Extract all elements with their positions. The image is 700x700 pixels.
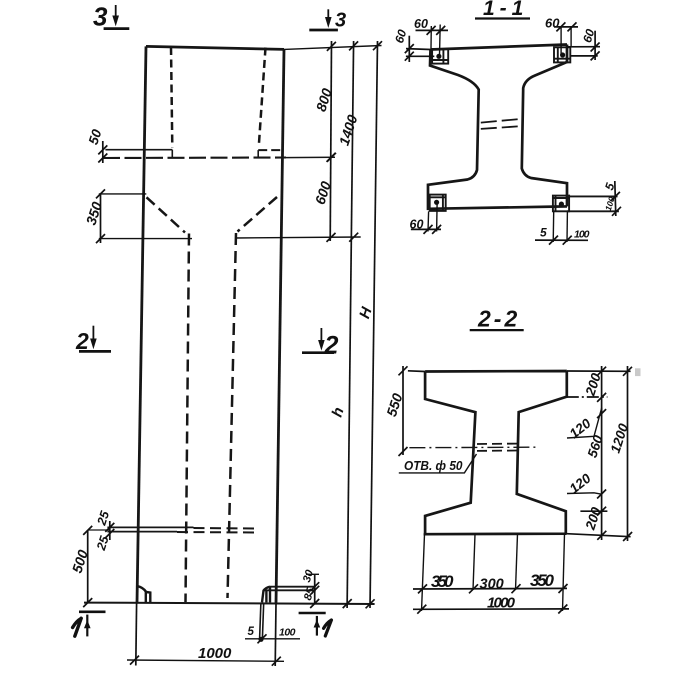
svg-text:100: 100: [279, 627, 296, 639]
svg-text:2: 2: [324, 332, 339, 360]
svg-text:100: 100: [574, 229, 590, 241]
svg-text:60: 60: [414, 17, 428, 31]
svg-text:1-1: 1-1: [483, 0, 528, 20]
svg-text:3: 3: [335, 10, 346, 32]
svg-text:60: 60: [545, 15, 560, 30]
svg-text:350: 350: [431, 572, 454, 591]
svg-text:ОТВ. ф 50: ОТВ. ф 50: [404, 458, 463, 473]
svg-text:1000: 1000: [198, 645, 232, 662]
svg-text:350: 350: [530, 571, 555, 590]
svg-text:5: 5: [540, 226, 547, 240]
svg-text:5: 5: [248, 626, 255, 638]
svg-text:60: 60: [410, 218, 424, 232]
svg-text:3: 3: [93, 2, 108, 32]
svg-text:1000: 1000: [487, 595, 516, 612]
svg-text:2-2: 2-2: [477, 306, 520, 332]
svg-text:300: 300: [480, 577, 504, 593]
